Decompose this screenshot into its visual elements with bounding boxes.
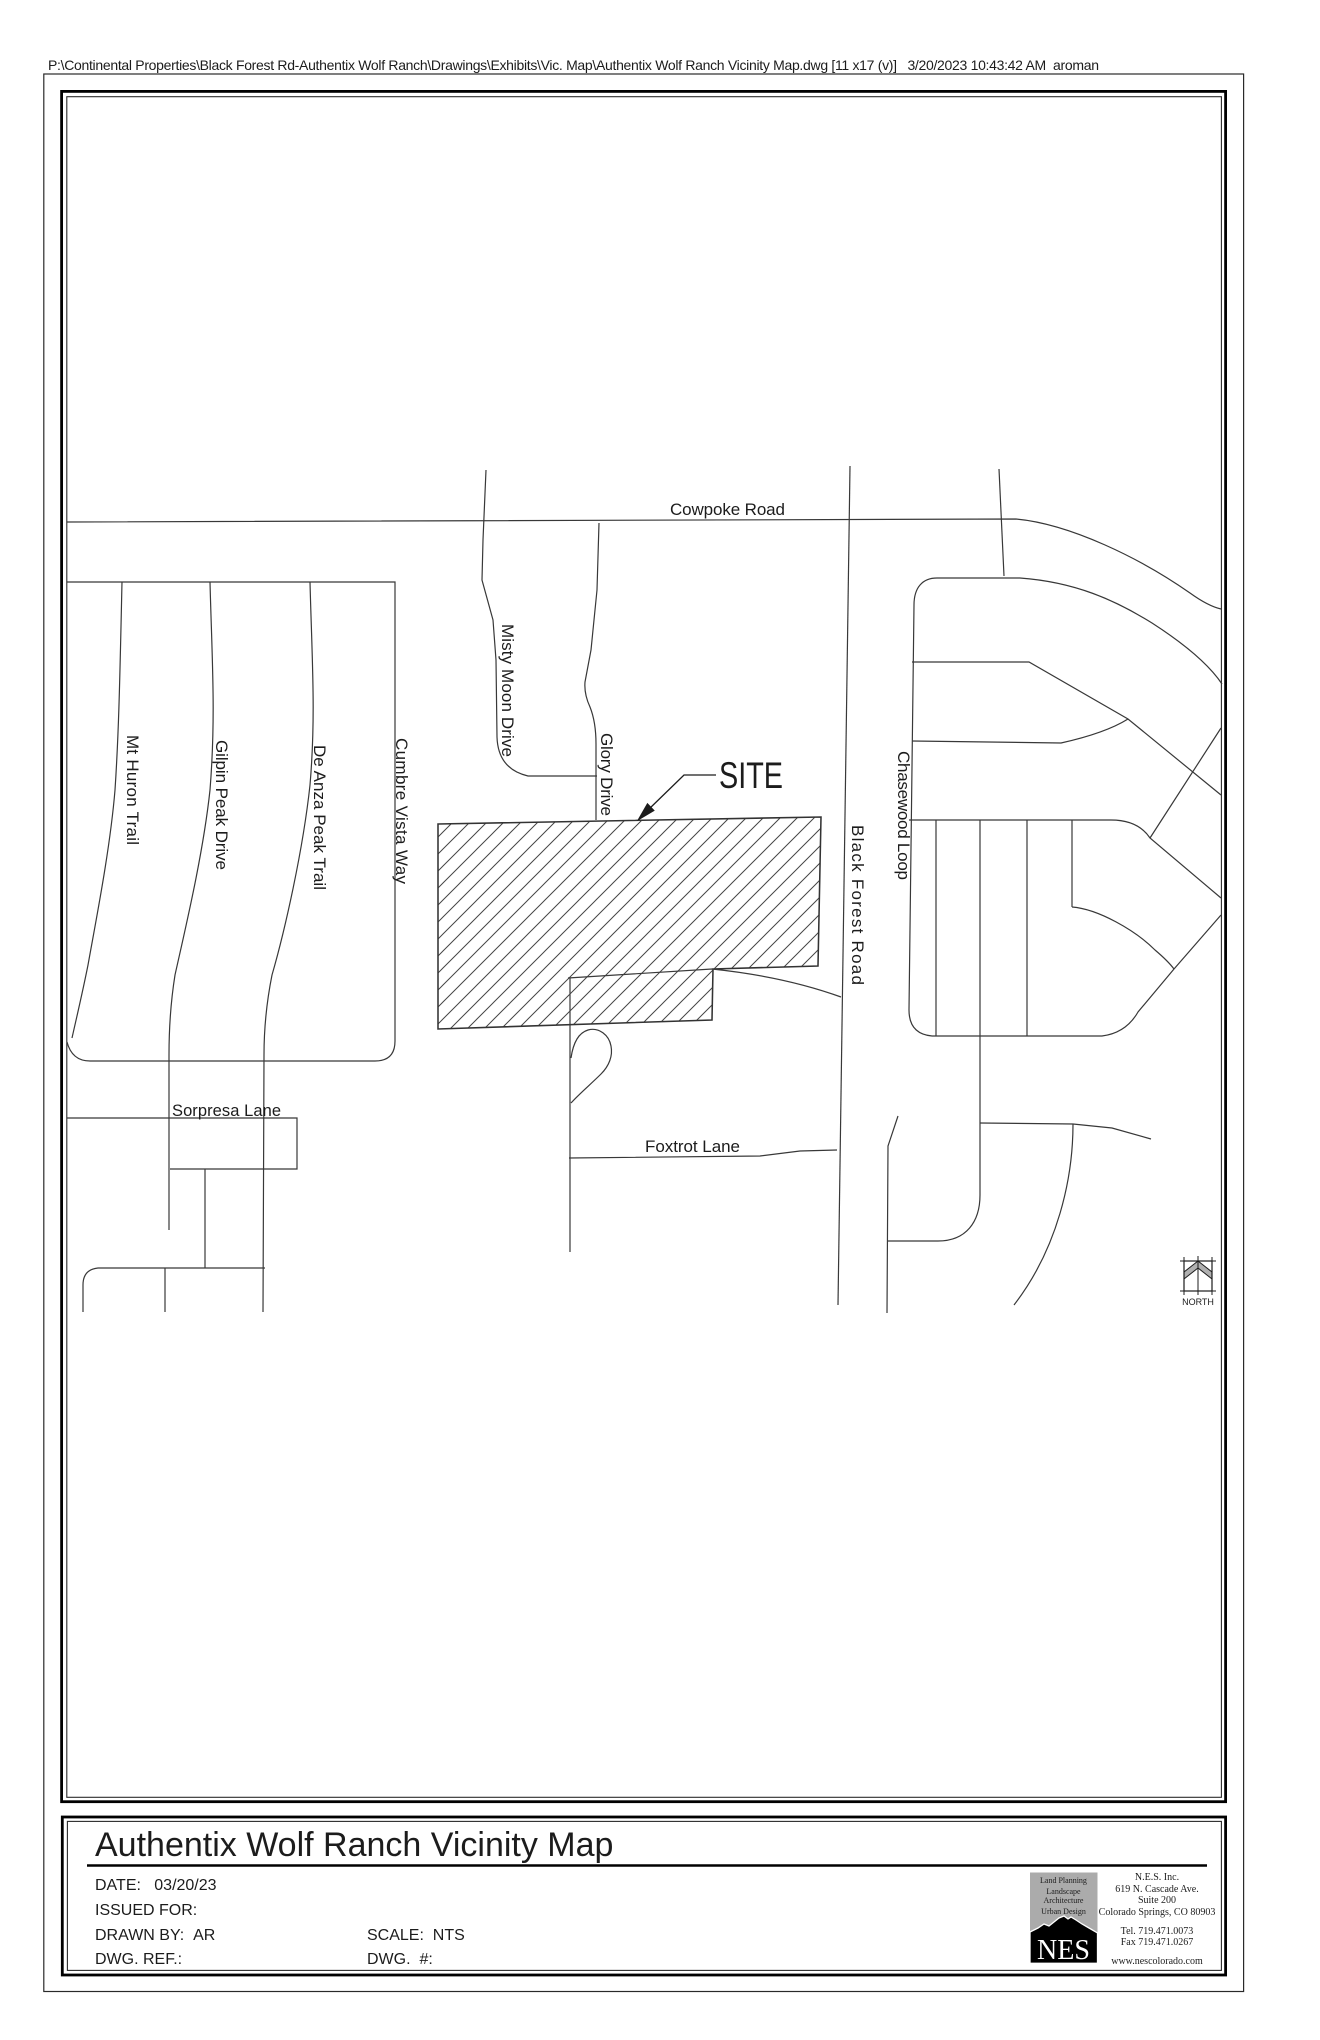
svg-text:SITE: SITE — [719, 755, 783, 796]
svg-text:NES: NES — [1037, 1934, 1090, 1966]
svg-text:Mt Huron Trail: Mt Huron Trail — [123, 735, 142, 845]
svg-text:Landscape: Landscape — [1046, 1887, 1081, 1896]
svg-text:Fax 719.471.0267: Fax 719.471.0267 — [1121, 1937, 1194, 1948]
svg-text:Urban Design: Urban Design — [1041, 1907, 1086, 1916]
svg-text:Black Forest Road: Black Forest Road — [848, 825, 867, 985]
svg-text:Architecture: Architecture — [1044, 1896, 1084, 1905]
svg-text:Colorado Springs, CO 80903: Colorado Springs, CO 80903 — [1099, 1907, 1216, 1918]
svg-text:Tel. 719.471.0073: Tel. 719.471.0073 — [1121, 1926, 1194, 1937]
svg-text:Gilpin Peak Drive: Gilpin Peak Drive — [212, 740, 231, 870]
svg-text:619 N. Cascade Ave.: 619 N. Cascade Ave. — [1115, 1884, 1198, 1895]
svg-text:Glory Drive: Glory Drive — [597, 733, 616, 816]
svg-text:Cowpoke Road: Cowpoke Road — [670, 500, 785, 519]
svg-text:www.nescolorado.com: www.nescolorado.com — [1111, 1956, 1203, 1967]
svg-text:NORTH: NORTH — [1182, 1297, 1214, 1307]
svg-text:DATE: 03/20/23: DATE: 03/20/23 — [95, 1877, 217, 1894]
svg-text:Suite 200: Suite 200 — [1138, 1895, 1176, 1906]
svg-text:Cumbre Vista Way: Cumbre Vista Way — [392, 738, 411, 885]
svg-text:Sorpresa Lane: Sorpresa Lane — [172, 1102, 281, 1120]
svg-text:DWG. #:: DWG. #: — [367, 1951, 433, 1968]
svg-text:Land Planning: Land Planning — [1040, 1876, 1087, 1885]
svg-text:P:\Continental Properties\Blac: P:\Continental Properties\Black Forest R… — [48, 57, 1099, 73]
svg-text:Authentix Wolf Ranch Vicinity: Authentix Wolf Ranch Vicinity Map — [95, 1826, 613, 1864]
svg-text:Chasewood Loop: Chasewood Loop — [894, 751, 913, 880]
svg-text:Foxtrot Lane: Foxtrot Lane — [645, 1137, 740, 1156]
svg-text:DWG. REF.:: DWG. REF.: — [95, 1951, 182, 1968]
svg-text:De Anza Peak Trail: De Anza Peak Trail — [310, 745, 329, 890]
svg-text:DRAWN BY: AR: DRAWN BY: AR — [95, 1927, 215, 1944]
svg-text:N.E.S. Inc.: N.E.S. Inc. — [1135, 1872, 1179, 1883]
svg-text:ISSUED FOR:: ISSUED FOR: — [95, 1902, 197, 1919]
svg-text:SCALE: NTS: SCALE: NTS — [367, 1927, 465, 1944]
svg-text:Misty Moon Drive: Misty Moon Drive — [498, 624, 517, 757]
